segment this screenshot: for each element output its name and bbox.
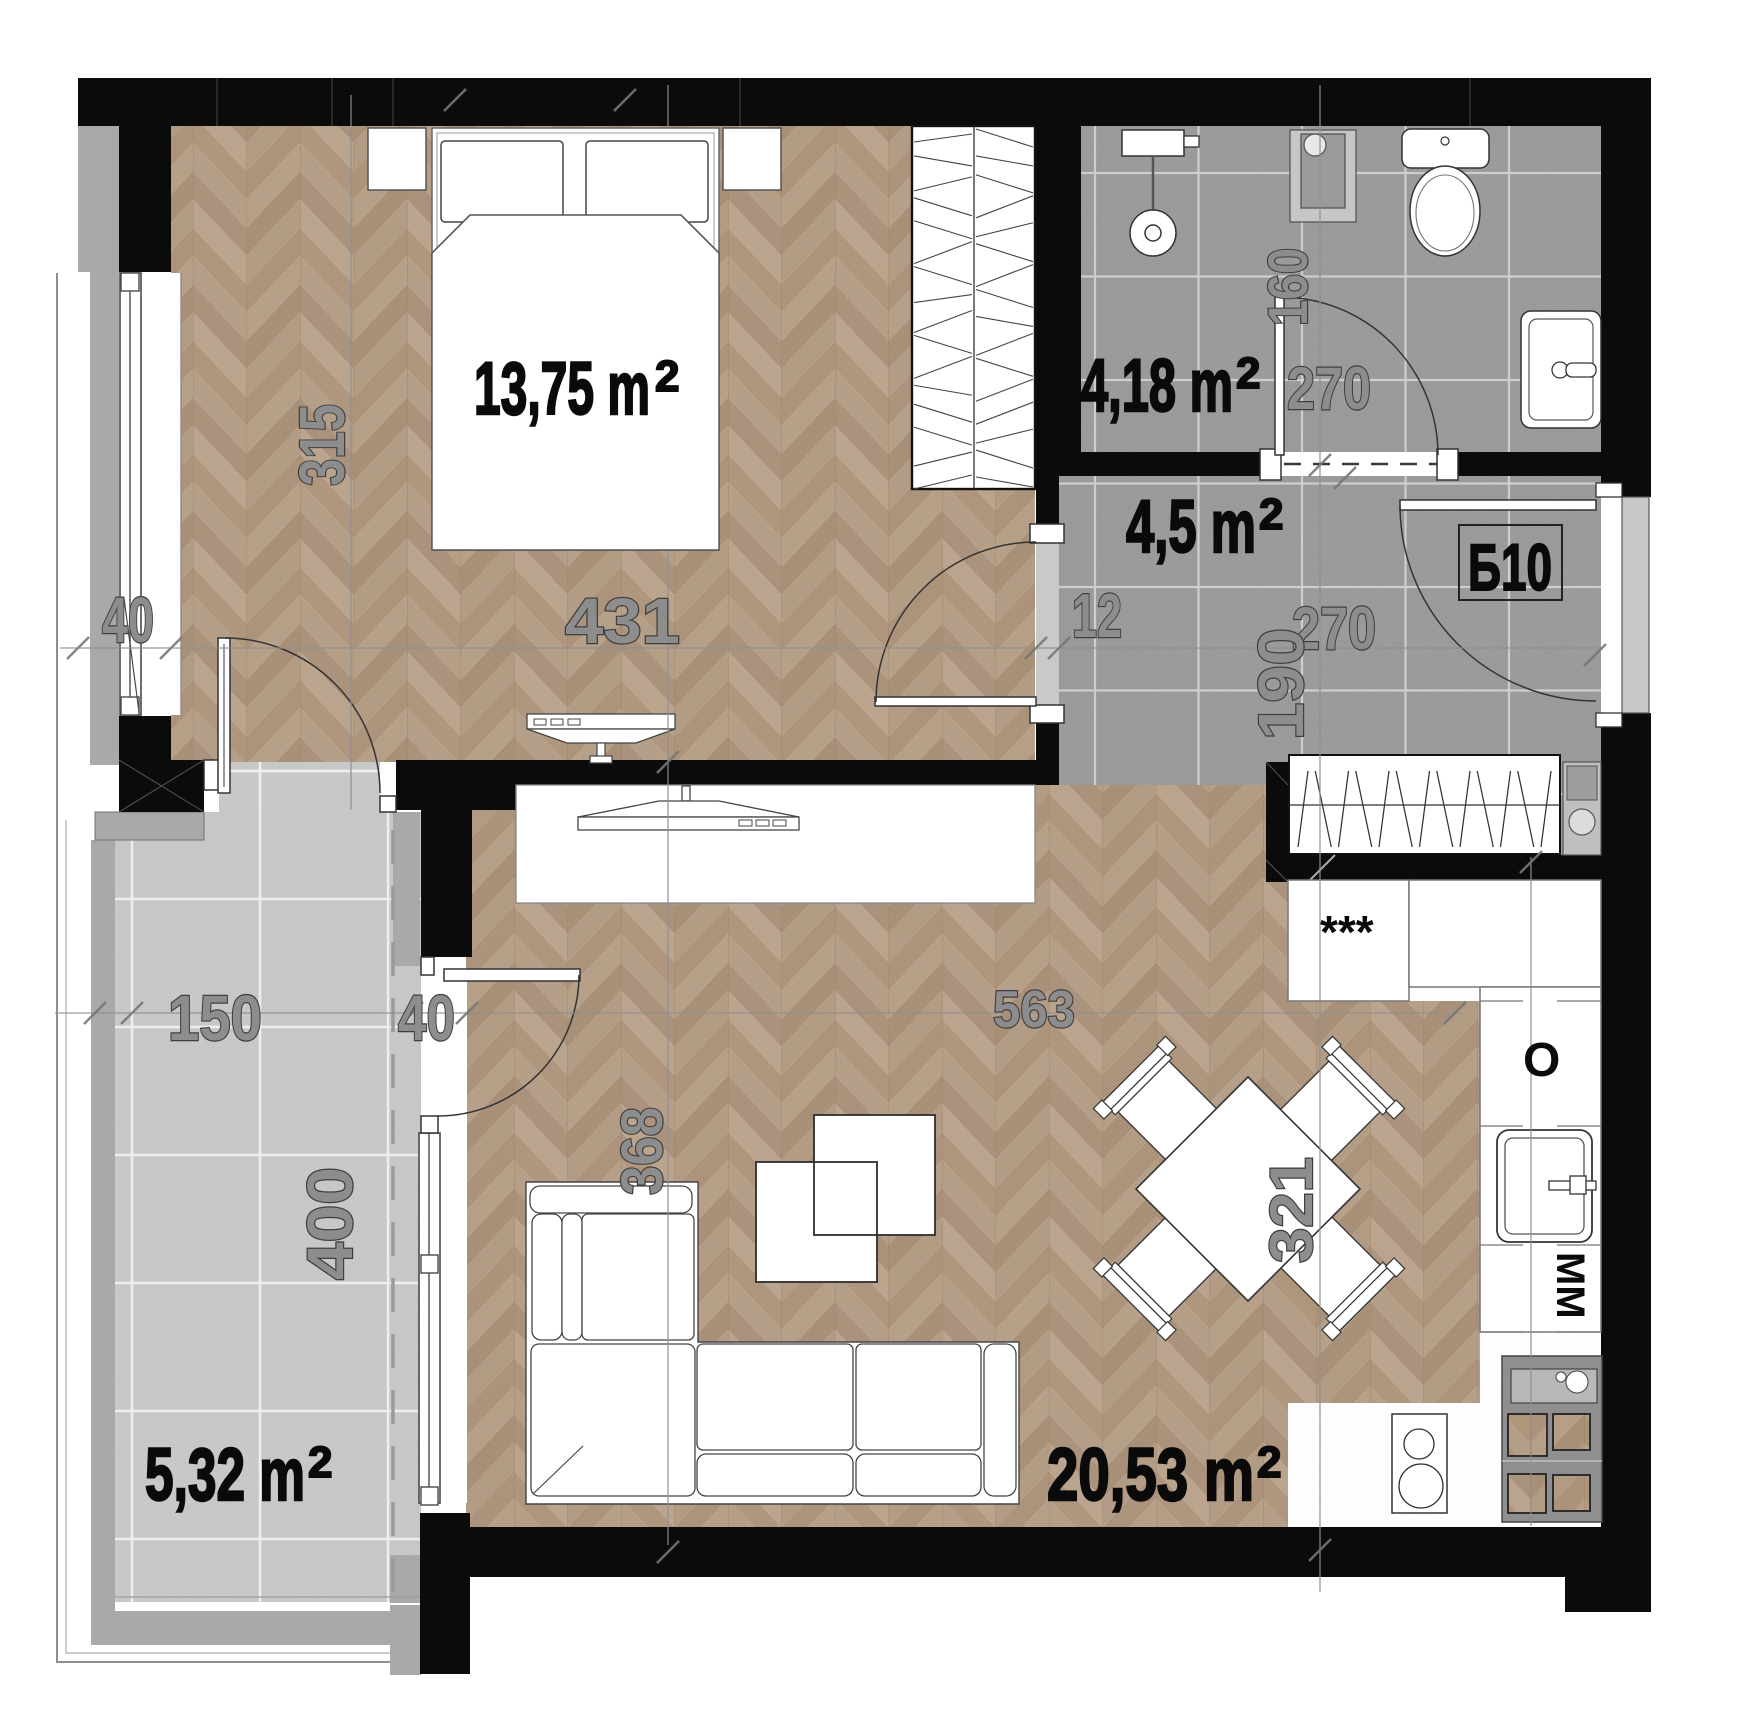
svg-text:321: 321	[1258, 1157, 1325, 1263]
svg-text:40: 40	[398, 982, 455, 1054]
svg-text:400: 400	[294, 1167, 366, 1280]
svg-text:2: 2	[1257, 1438, 1281, 1487]
svg-text:O: O	[1523, 1034, 1560, 1087]
svg-text:MM: MM	[1548, 1252, 1592, 1319]
svg-text:2: 2	[1236, 349, 1260, 398]
svg-text:40: 40	[102, 584, 154, 656]
svg-text:4,18 m: 4,18 m	[1081, 344, 1233, 427]
svg-text:315: 315	[286, 404, 358, 486]
svg-text:20,53 m: 20,53 m	[1047, 1433, 1254, 1516]
svg-text:190: 190	[1245, 628, 1317, 740]
svg-text:563: 563	[993, 981, 1075, 1039]
svg-text:368: 368	[610, 1107, 675, 1195]
svg-text:160: 160	[1256, 248, 1319, 326]
svg-text:12: 12	[1072, 582, 1122, 651]
svg-text:150: 150	[168, 982, 262, 1054]
svg-text:Б10: Б10	[1468, 530, 1552, 604]
svg-text:5,32 m: 5,32 m	[145, 1433, 305, 1516]
svg-text:2: 2	[308, 1438, 332, 1487]
svg-text:***: ***	[1320, 906, 1374, 958]
svg-text:2: 2	[655, 352, 679, 401]
svg-text:13,75 m: 13,75 m	[474, 347, 650, 430]
svg-text:2: 2	[1259, 490, 1283, 539]
svg-text:270: 270	[1287, 355, 1371, 422]
svg-text:431: 431	[565, 585, 680, 657]
svg-text:4,5 m: 4,5 m	[1126, 485, 1256, 568]
